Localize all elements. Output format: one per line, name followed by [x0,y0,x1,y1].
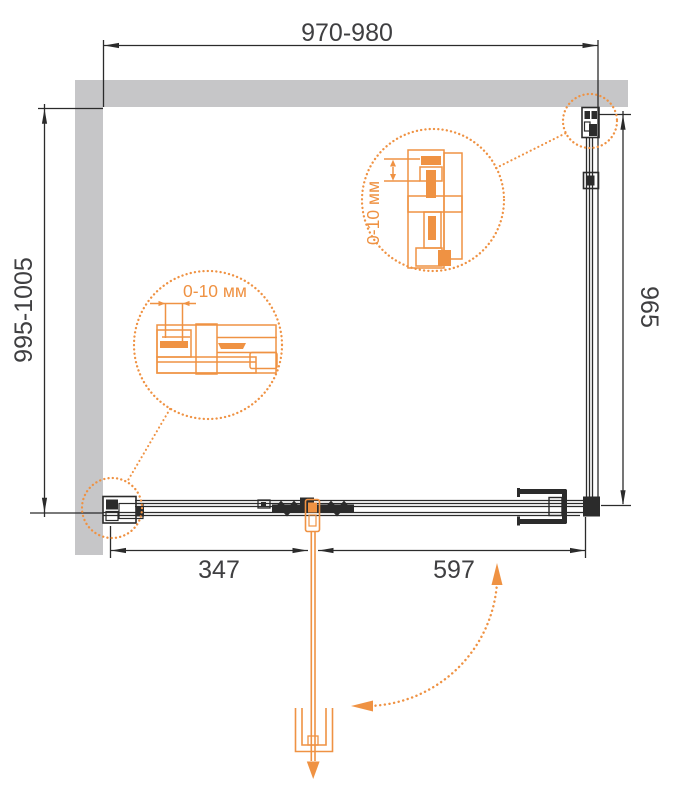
label-bottom-adjustment: 0-10 мм [183,281,247,301]
wall-profile-top-right [582,108,599,138]
detail-drawing-bottom [150,301,277,374]
label-top-width: 970-980 [301,19,393,47]
orange-details: 0-10 мм 0-10 мм [82,94,617,779]
panel-bracket-right [584,173,599,189]
drawing-canvas: 970-980 995-1005 965 347 597 [0,0,673,800]
label-top-adjustment: 0-10 мм [363,181,383,245]
detail-drawing-top [384,150,462,268]
enclosure [103,107,600,526]
swing-arrow-up [492,563,503,585]
door-direction-arrow [307,762,320,780]
detail-leader-top [496,133,566,168]
label-right-height: 965 [635,286,663,328]
door-swing-arc [351,563,503,712]
dimension-bottom-widths [111,517,586,558]
door-open [296,500,333,780]
label-bottom-left-width: 347 [198,556,240,584]
swing-arrow-left [351,701,373,712]
corner-block [583,497,600,517]
label-bottom-right-width: 597 [433,556,475,584]
enclosure-plan-svg: 970-980 995-1005 965 347 597 [0,0,673,800]
detail-leader-bottom [127,409,170,482]
dimension-right-height [599,111,631,506]
walls [75,80,628,555]
wall-top [75,80,628,107]
door-handle-fill [308,503,317,513]
label-left-height: 995-1005 [10,257,38,363]
wall-left [75,80,103,555]
fixed-panel-right [587,107,599,497]
dimension-lines [30,40,631,558]
